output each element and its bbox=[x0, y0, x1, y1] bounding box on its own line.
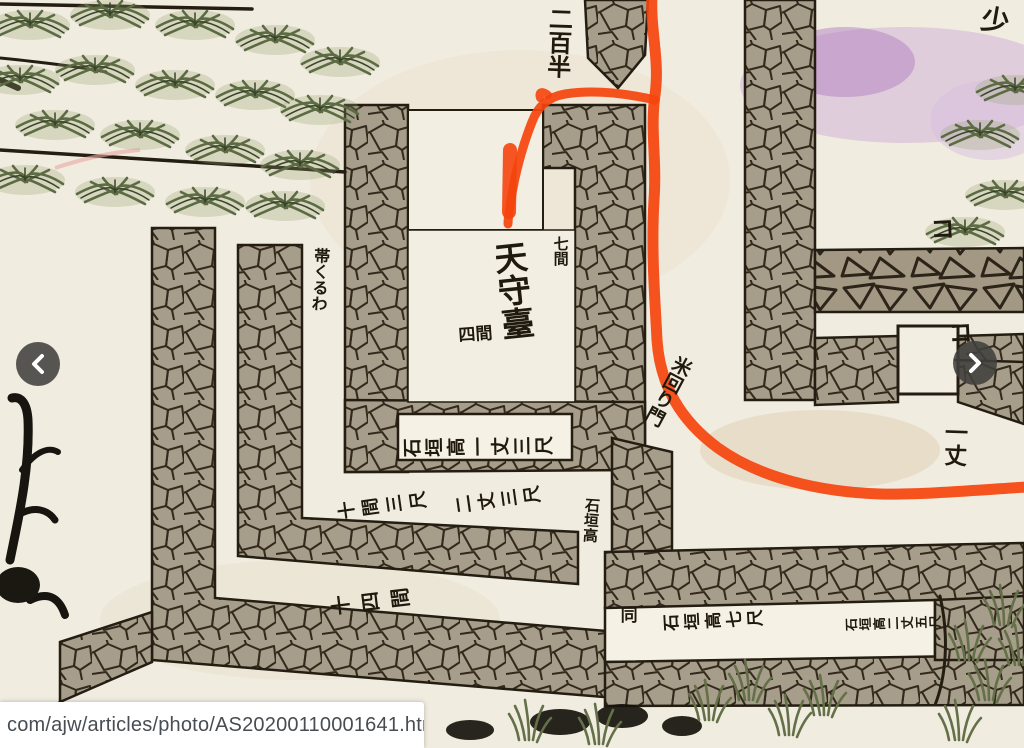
chevron-left-icon bbox=[29, 353, 47, 375]
status-url-text: com/ajw/articles/photo/AS20200110001641.… bbox=[7, 714, 424, 737]
castle-map-photo[interactable] bbox=[0, 0, 1024, 748]
chevron-right-icon bbox=[966, 352, 984, 374]
next-photo-button[interactable] bbox=[953, 341, 997, 385]
prev-photo-button[interactable] bbox=[16, 342, 60, 386]
photo-viewer: 二百半天守臺七間四間帯くるわ石垣高一丈三尺十間三尺二丈三尺石垣高十四間同石垣高七… bbox=[0, 0, 1024, 748]
status-bar: com/ajw/articles/photo/AS20200110001641.… bbox=[0, 702, 424, 748]
